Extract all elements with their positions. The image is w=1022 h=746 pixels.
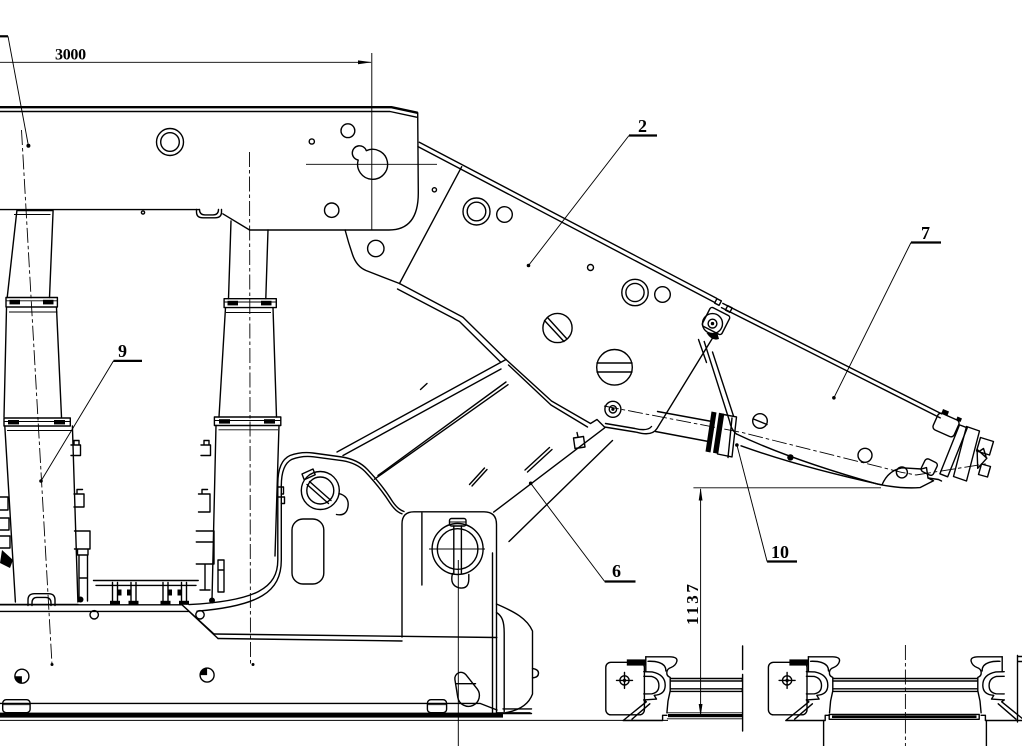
- svg-text:9: 9: [118, 341, 127, 361]
- svg-text:1137: 1137: [683, 582, 702, 625]
- svg-text:6: 6: [612, 561, 621, 581]
- svg-text:7: 7: [921, 223, 930, 243]
- svg-text:2: 2: [638, 116, 647, 136]
- svg-text:10: 10: [771, 542, 789, 562]
- svg-text:3000: 3000: [55, 47, 86, 64]
